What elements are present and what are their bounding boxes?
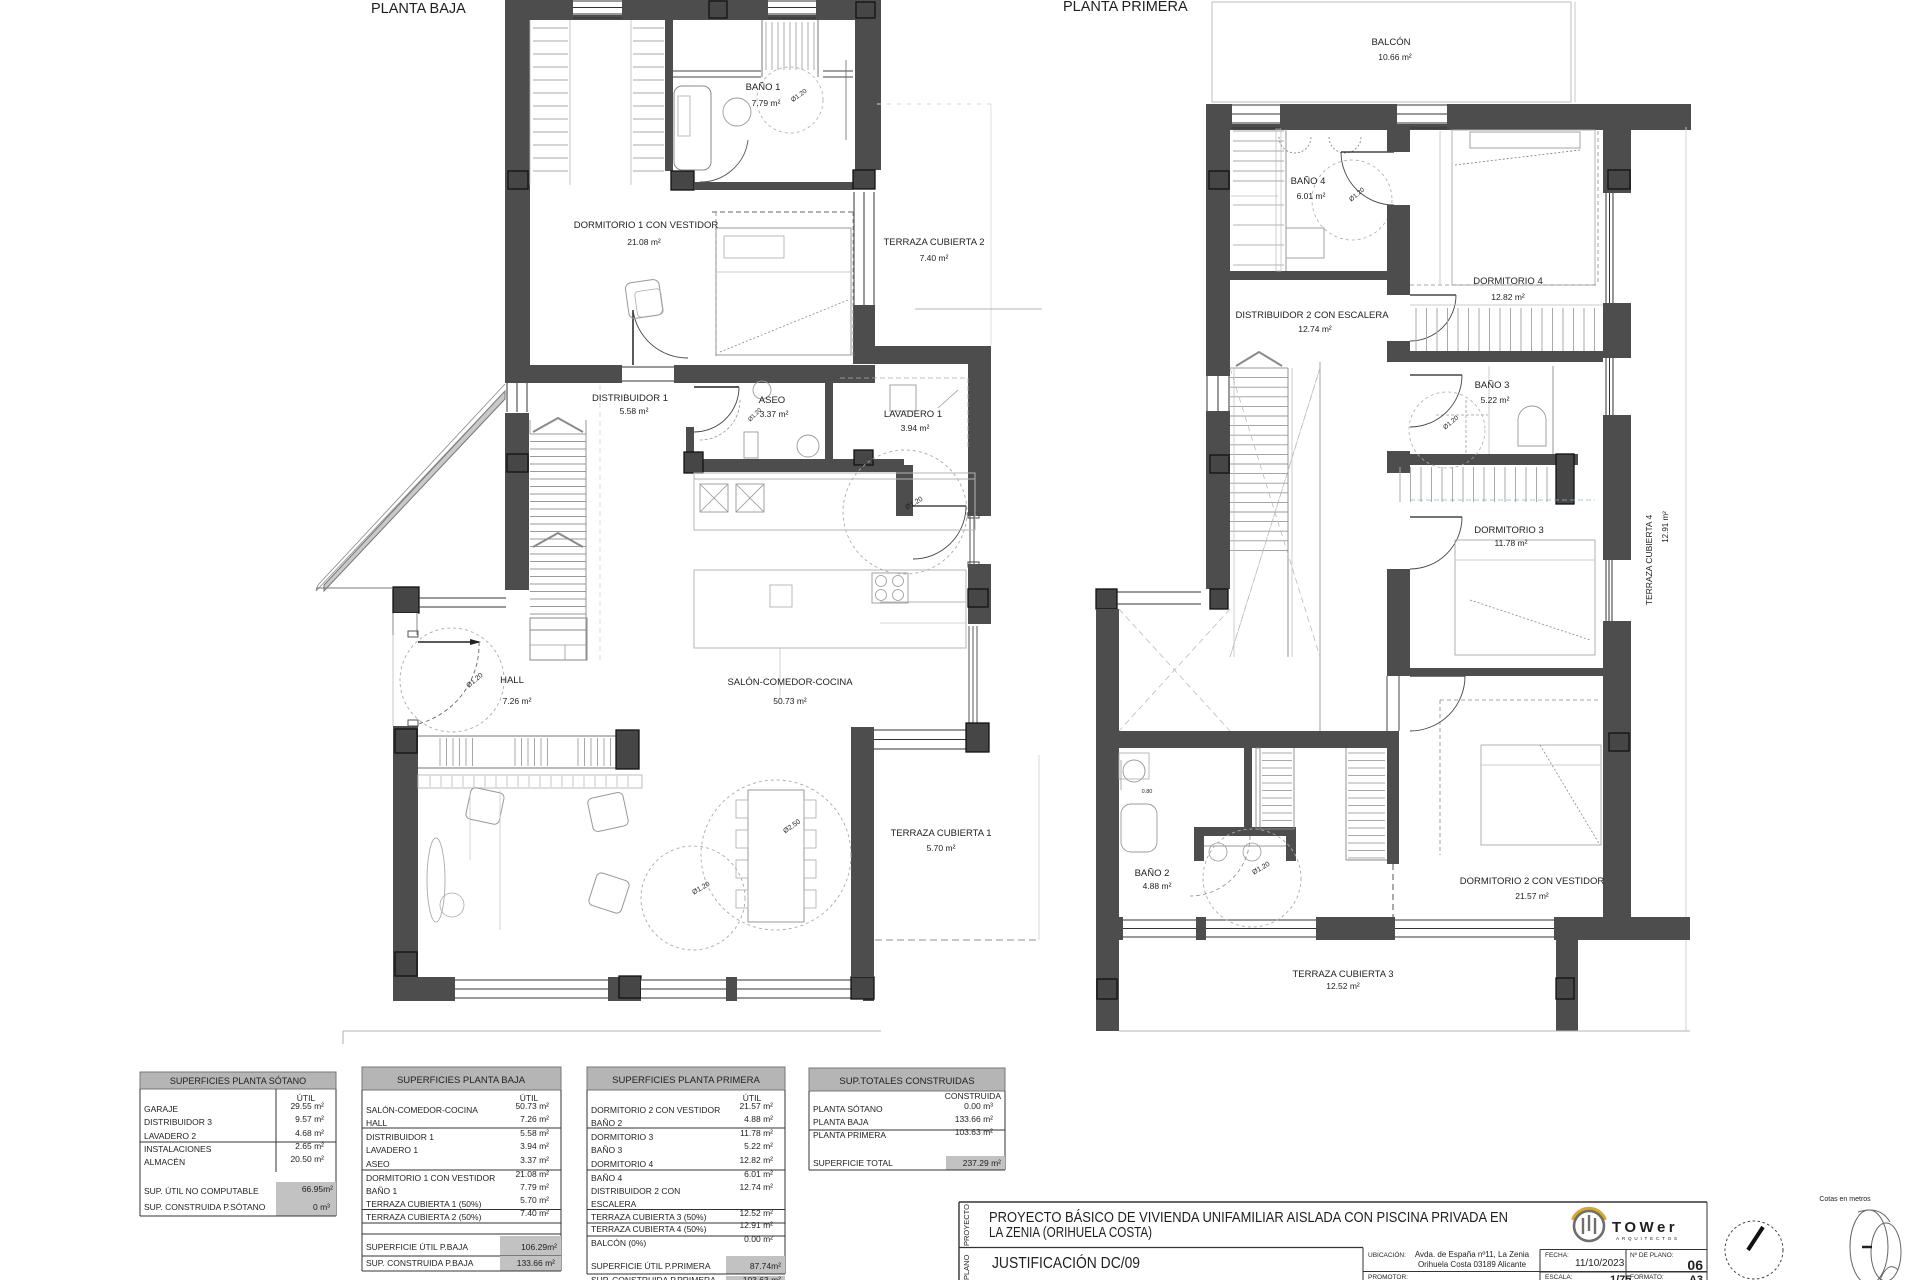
svg-text:5.22 m²: 5.22 m² <box>744 1141 773 1151</box>
svg-text:0.00 m³: 0.00 m³ <box>964 1101 993 1111</box>
svg-text:29.55 m²: 29.55 m² <box>290 1101 324 1111</box>
svg-text:50.73 m²: 50.73 m² <box>773 696 807 706</box>
svg-text:66.95m²: 66.95m² <box>302 1184 333 1194</box>
svg-text:4.88 m²: 4.88 m² <box>1143 881 1172 891</box>
svg-text:11/10/2023: 11/10/2023 <box>1575 1258 1625 1269</box>
svg-text:DORMITORIO 2 CON VESTIDOR: DORMITORIO 2 CON VESTIDOR <box>1460 876 1605 887</box>
svg-text:103.63 m²: 103.63 m² <box>955 1127 993 1137</box>
svg-text:9.57 m²: 9.57 m² <box>295 1114 324 1124</box>
svg-text:DISTRIBUIDOR 2 CON ESCALERA: DISTRIBUIDOR 2 CON ESCALERA <box>1235 310 1389 321</box>
svg-text:133.66 m²: 133.66 m² <box>517 1258 555 1268</box>
svg-text:ESCALA:: ESCALA: <box>1545 1274 1573 1280</box>
svg-text:7.79 m²: 7.79 m² <box>752 98 781 108</box>
svg-text:TERRAZA CUBIERTA 3: TERRAZA CUBIERTA 3 <box>1292 969 1393 980</box>
svg-text:SUP. CONSTRUIDA P.PRIMERA: SUP. CONSTRUIDA P.PRIMERA <box>591 1275 716 1280</box>
svg-text:DORMITORIO 3: DORMITORIO 3 <box>1474 525 1544 536</box>
svg-text:DORMITORIO 2 CON VESTIDOR: DORMITORIO 2 CON VESTIDOR <box>591 1105 720 1115</box>
svg-text:TOWer: TOWer <box>1612 1219 1678 1236</box>
svg-text:ARQUITECTOS: ARQUITECTOS <box>1616 1236 1680 1241</box>
svg-text:3.37 m²: 3.37 m² <box>760 409 789 419</box>
svg-text:21.57 m²: 21.57 m² <box>739 1101 773 1111</box>
svg-text:4.68 m²: 4.68 m² <box>295 1128 324 1138</box>
svg-text:7.79 m²: 7.79 m² <box>520 1182 549 1192</box>
svg-text:0 m³: 0 m³ <box>313 1202 330 1212</box>
svg-text:DISTRIBUIDOR 1: DISTRIBUIDOR 1 <box>366 1132 434 1142</box>
svg-text:SUPERFICIE ÚTIL P.PRIMERA: SUPERFICIE ÚTIL P.PRIMERA <box>591 1261 711 1271</box>
svg-text:FECHA:: FECHA: <box>1545 1252 1569 1259</box>
svg-text:10.66 m²: 10.66 m² <box>1378 52 1412 62</box>
svg-text:11.78 m²: 11.78 m² <box>1495 538 1528 548</box>
svg-text:DORMITORIO 4: DORMITORIO 4 <box>591 1159 653 1169</box>
svg-text:PLANTA SÓTANO: PLANTA SÓTANO <box>813 1104 883 1114</box>
svg-text:50.73 m²: 50.73 m² <box>515 1101 549 1111</box>
svg-text:BAÑO 2: BAÑO 2 <box>591 1118 622 1128</box>
svg-text:3.94 m²: 3.94 m² <box>520 1141 549 1151</box>
svg-text:PLANTA PRIMERA: PLANTA PRIMERA <box>813 1130 886 1140</box>
svg-text:SUP.TOTALES CONSTRUIDAS: SUP.TOTALES CONSTRUIDAS <box>839 1076 974 1087</box>
svg-text:HALL: HALL <box>500 675 524 686</box>
svg-text:133.66 m²: 133.66 m² <box>955 1114 993 1124</box>
svg-text:103.63 m²: 103.63 m² <box>743 1275 781 1280</box>
svg-text:7.26 m²: 7.26 m² <box>520 1114 549 1124</box>
svg-text:Avda. de España nº11, La Zenia: Avda. de España nº11, La Zenia <box>1415 1250 1530 1259</box>
svg-text:DISTRIBUIDOR 2 CON: DISTRIBUIDOR 2 CON <box>591 1186 680 1196</box>
svg-text:GARAJE: GARAJE <box>144 1104 178 1114</box>
svg-text:21.57 m²: 21.57 m² <box>1515 891 1549 901</box>
svg-text:BAÑO 1: BAÑO 1 <box>746 82 781 93</box>
svg-text:PROMOTOR:: PROMOTOR: <box>1368 1274 1408 1280</box>
svg-text:PLANTA BAJA: PLANTA BAJA <box>371 1 466 17</box>
svg-text:DISTRIBUIDOR 1: DISTRIBUIDOR 1 <box>592 393 668 404</box>
svg-text:LAVADERO 2: LAVADERO 2 <box>144 1131 196 1141</box>
svg-text:TERRAZA CUBIERTA 1 (50%): TERRAZA CUBIERTA 1 (50%) <box>366 1199 482 1209</box>
svg-text:BAÑO 3: BAÑO 3 <box>1475 380 1510 391</box>
svg-text:DORMITORIO 1 CON VESTIDOR: DORMITORIO 1 CON VESTIDOR <box>366 1173 495 1183</box>
svg-text:DORMITORIO 3: DORMITORIO 3 <box>591 1132 653 1142</box>
svg-text:HALL: HALL <box>366 1118 388 1128</box>
svg-text:PROYECTO BÁSICO DE VIVIENDA UN: PROYECTO BÁSICO DE VIVIENDA UNIFAMILIAR … <box>989 1209 1508 1226</box>
svg-text:6.01 m²: 6.01 m² <box>1297 191 1326 201</box>
svg-text:LAVADERO 1: LAVADERO 1 <box>884 409 942 420</box>
svg-text:PLANTA PRIMERA: PLANTA PRIMERA <box>1063 0 1188 15</box>
svg-text:ASEO: ASEO <box>366 1159 390 1169</box>
svg-text:106.29m²: 106.29m² <box>521 1242 557 1252</box>
svg-text:TERRAZA CUBIERTA 3 (50%): TERRAZA CUBIERTA 3 (50%) <box>591 1212 707 1222</box>
svg-text:3.94 m²: 3.94 m² <box>901 423 930 433</box>
svg-text:12.52 m²: 12.52 m² <box>1326 981 1360 991</box>
svg-text:12.74 m²: 12.74 m² <box>1298 324 1332 334</box>
svg-text:21.08 m²: 21.08 m² <box>627 237 661 247</box>
svg-text:5.58 m²: 5.58 m² <box>520 1128 549 1138</box>
svg-text:SUPERFICIE TOTAL: SUPERFICIE TOTAL <box>813 1158 893 1168</box>
svg-text:BALCÓN: BALCÓN <box>1371 37 1410 48</box>
svg-text:SALÓN-COMEDOR-COCINA: SALÓN-COMEDOR-COCINA <box>727 677 853 688</box>
svg-text:FORMATO:: FORMATO: <box>1630 1274 1664 1280</box>
svg-text:7.40 m²: 7.40 m² <box>920 253 949 263</box>
svg-text:BAÑO 2: BAÑO 2 <box>1135 868 1170 879</box>
svg-text:A3: A3 <box>1689 1274 1703 1280</box>
svg-text:5.58 m²: 5.58 m² <box>620 406 649 416</box>
svg-text:TERRAZA CUBIERTA 1: TERRAZA CUBIERTA 1 <box>890 828 991 839</box>
svg-text:5.70 m²: 5.70 m² <box>520 1195 549 1205</box>
svg-text:12.91 m²: 12.91 m² <box>1661 511 1670 543</box>
svg-text:INSTALACIONES: INSTALACIONES <box>144 1144 212 1154</box>
svg-text:UBICACIÓN:: UBICACIÓN: <box>1368 1250 1406 1259</box>
svg-text:SUPERFICIE ÚTIL P.BAJA: SUPERFICIE ÚTIL P.BAJA <box>366 1242 468 1252</box>
svg-text:4.88 m²: 4.88 m² <box>744 1114 773 1124</box>
svg-text:5.70 m²: 5.70 m² <box>927 843 956 853</box>
svg-text:DISTRIBUIDOR 3: DISTRIBUIDOR 3 <box>144 1117 212 1127</box>
svg-text:1/75: 1/75 <box>1610 1274 1631 1280</box>
svg-text:ESCALERA: ESCALERA <box>591 1199 637 1209</box>
svg-text:12.82 m²: 12.82 m² <box>1491 292 1525 302</box>
svg-text:BAÑO 3: BAÑO 3 <box>591 1145 622 1155</box>
svg-text:06: 06 <box>1687 1257 1703 1273</box>
svg-text:PLANTA BAJA: PLANTA BAJA <box>813 1117 869 1127</box>
svg-text:Orihuela Costa 03189 Alicante: Orihuela Costa 03189 Alicante <box>1418 1260 1527 1269</box>
svg-text:Cotas en metros: Cotas en metros <box>1819 1196 1871 1203</box>
svg-text:SUP. CONSTRUIDA P.SÓTANO: SUP. CONSTRUIDA P.SÓTANO <box>144 1202 266 1212</box>
svg-text:TERRAZA CUBIERTA 4 (50%): TERRAZA CUBIERTA 4 (50%) <box>591 1224 707 1234</box>
svg-text:ASEO: ASEO <box>759 395 785 406</box>
svg-text:DORMITORIO 1 CON VESTIDOR: DORMITORIO 1 CON VESTIDOR <box>574 220 719 231</box>
svg-text:LA ZENIA (ORIHUELA COSTA): LA ZENIA (ORIHUELA COSTA) <box>989 1225 1152 1241</box>
svg-text:20.50 m²: 20.50 m² <box>290 1154 324 1164</box>
svg-text:SUPERFICIES PLANTA PRIMERA: SUPERFICIES PLANTA PRIMERA <box>612 1075 760 1086</box>
svg-text:SUP. CONSTRUIDA P.BAJA: SUP. CONSTRUIDA P.BAJA <box>366 1258 474 1268</box>
svg-text:237.29 m²: 237.29 m² <box>963 1158 1001 1168</box>
svg-text:BAÑO 4: BAÑO 4 <box>591 1173 622 1183</box>
svg-text:JUSTIFICACIÓN DC/09: JUSTIFICACIÓN DC/09 <box>992 1255 1140 1272</box>
svg-text:SALÓN-COMEDOR-COCINA: SALÓN-COMEDOR-COCINA <box>366 1105 478 1115</box>
svg-text:LAVADERO 1: LAVADERO 1 <box>366 1145 418 1155</box>
svg-text:12.91 m²: 12.91 m² <box>739 1220 773 1230</box>
svg-text:TERRAZA CUBIERTA 2: TERRAZA CUBIERTA 2 <box>883 237 984 248</box>
svg-text:PLANO: PLANO <box>962 1254 971 1280</box>
svg-text:3.37 m²: 3.37 m² <box>520 1155 549 1165</box>
svg-text:TERRAZA CUBIERTA 4: TERRAZA CUBIERTA 4 <box>1644 515 1654 606</box>
svg-text:TERRAZA CUBIERTA 2 (50%): TERRAZA CUBIERTA 2 (50%) <box>366 1212 482 1222</box>
svg-text:5.22 m²: 5.22 m² <box>1481 395 1510 405</box>
svg-text:0.80: 0.80 <box>1142 789 1153 795</box>
svg-text:12.82 m²: 12.82 m² <box>739 1155 773 1165</box>
svg-text:ALMACÉN: ALMACÉN <box>144 1157 185 1167</box>
svg-text:12.74 m²: 12.74 m² <box>739 1182 773 1192</box>
svg-text:7.26 m²: 7.26 m² <box>503 696 532 706</box>
svg-text:87.74m²: 87.74m² <box>750 1261 781 1271</box>
svg-text:BAÑO 1: BAÑO 1 <box>366 1186 397 1196</box>
svg-text:DORMITORIO 4: DORMITORIO 4 <box>1473 276 1543 287</box>
svg-text:SUPERFICIES PLANTA BAJA: SUPERFICIES PLANTA BAJA <box>397 1075 526 1086</box>
svg-text:Nº DE PLANO:: Nº DE PLANO: <box>1630 1252 1674 1259</box>
svg-text:BALCÓN (0%): BALCÓN (0%) <box>591 1238 646 1248</box>
svg-text:PROYECTO: PROYECTO <box>962 1204 971 1246</box>
svg-text:BAÑO 4: BAÑO 4 <box>1291 176 1326 187</box>
svg-text:CONSTRUIDA: CONSTRUIDA <box>945 1091 1002 1101</box>
svg-text:SUPERFICIES PLANTA SÓTANO: SUPERFICIES PLANTA SÓTANO <box>170 1076 306 1086</box>
svg-text:SUP. ÚTIL NO COMPUTABLE: SUP. ÚTIL NO COMPUTABLE <box>144 1186 259 1196</box>
svg-text:11.78 m²: 11.78 m² <box>740 1128 773 1138</box>
